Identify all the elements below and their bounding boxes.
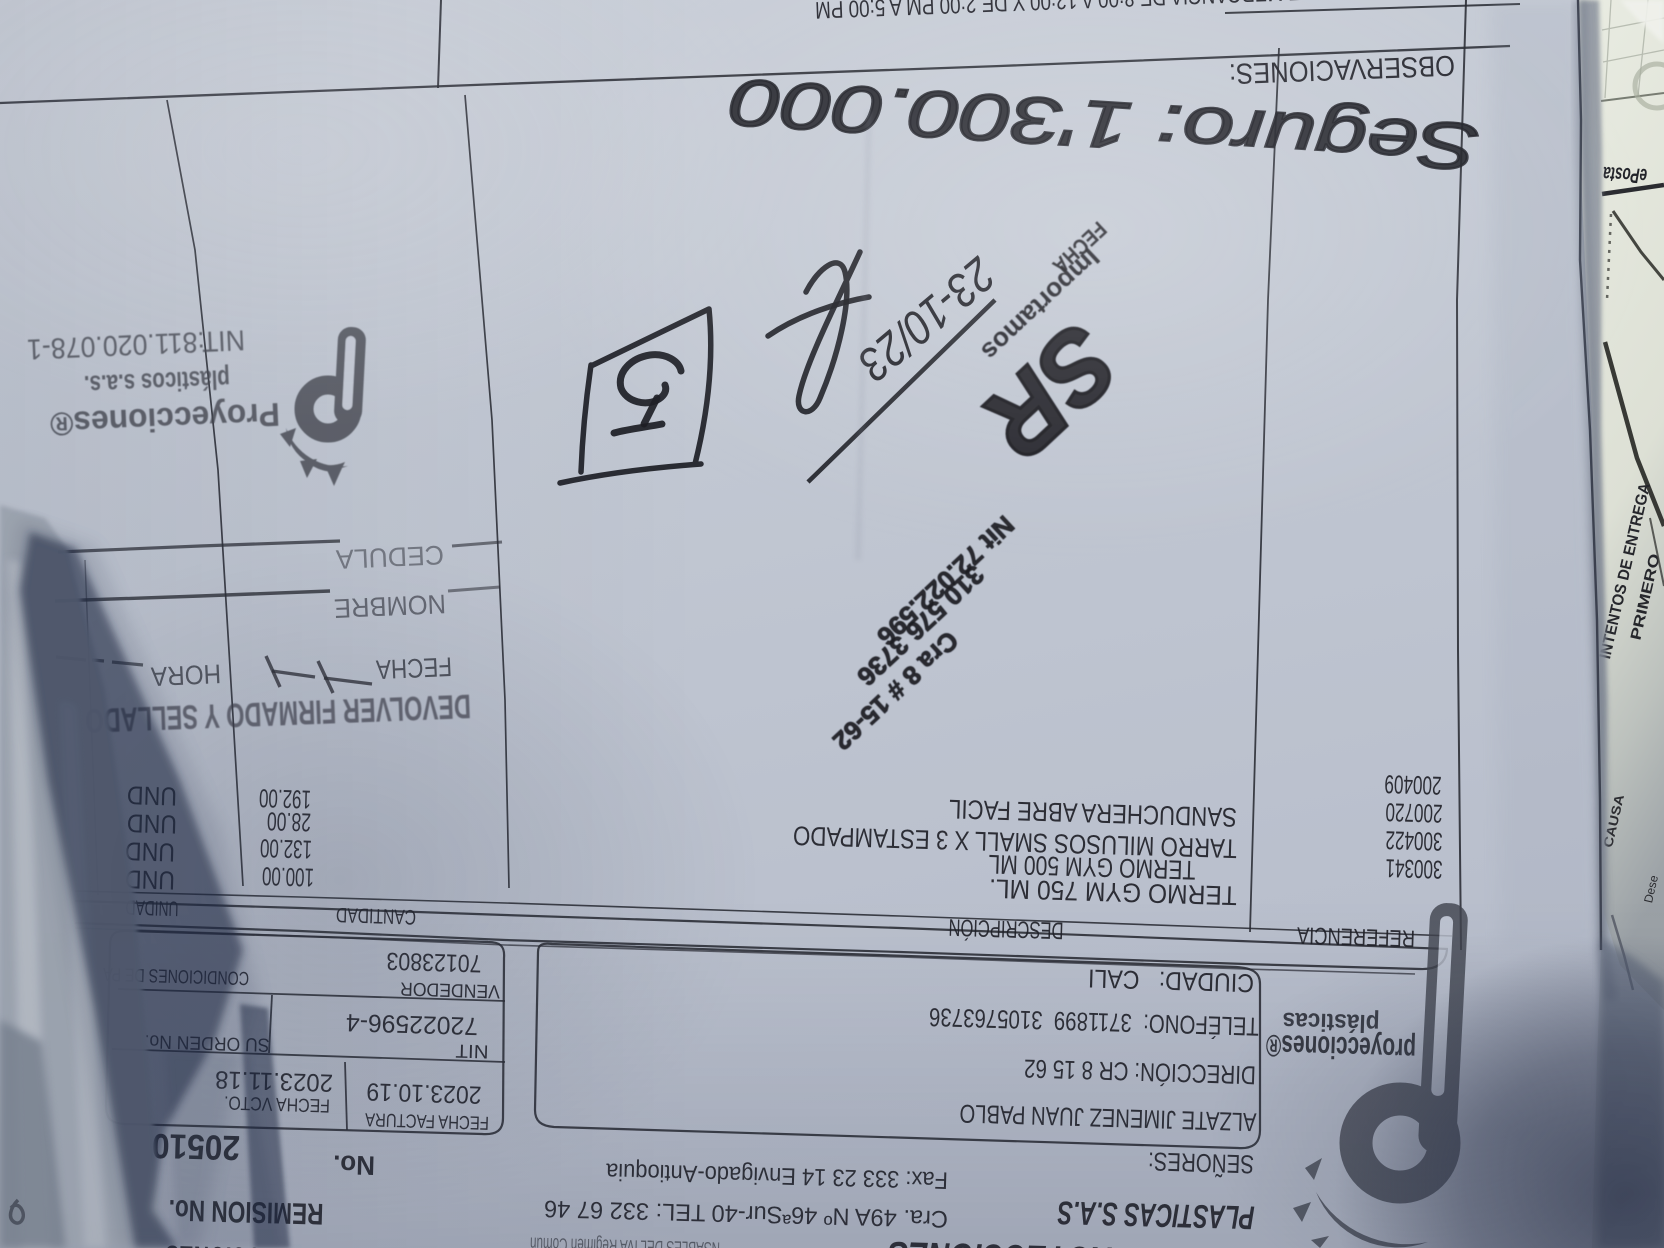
svg-text:200720: 200720: [1385, 797, 1443, 829]
svg-text:300341: 300341: [1385, 853, 1443, 885]
svg-text:300422: 300422: [1385, 825, 1443, 857]
svg-text:200409: 200409: [1384, 769, 1442, 801]
